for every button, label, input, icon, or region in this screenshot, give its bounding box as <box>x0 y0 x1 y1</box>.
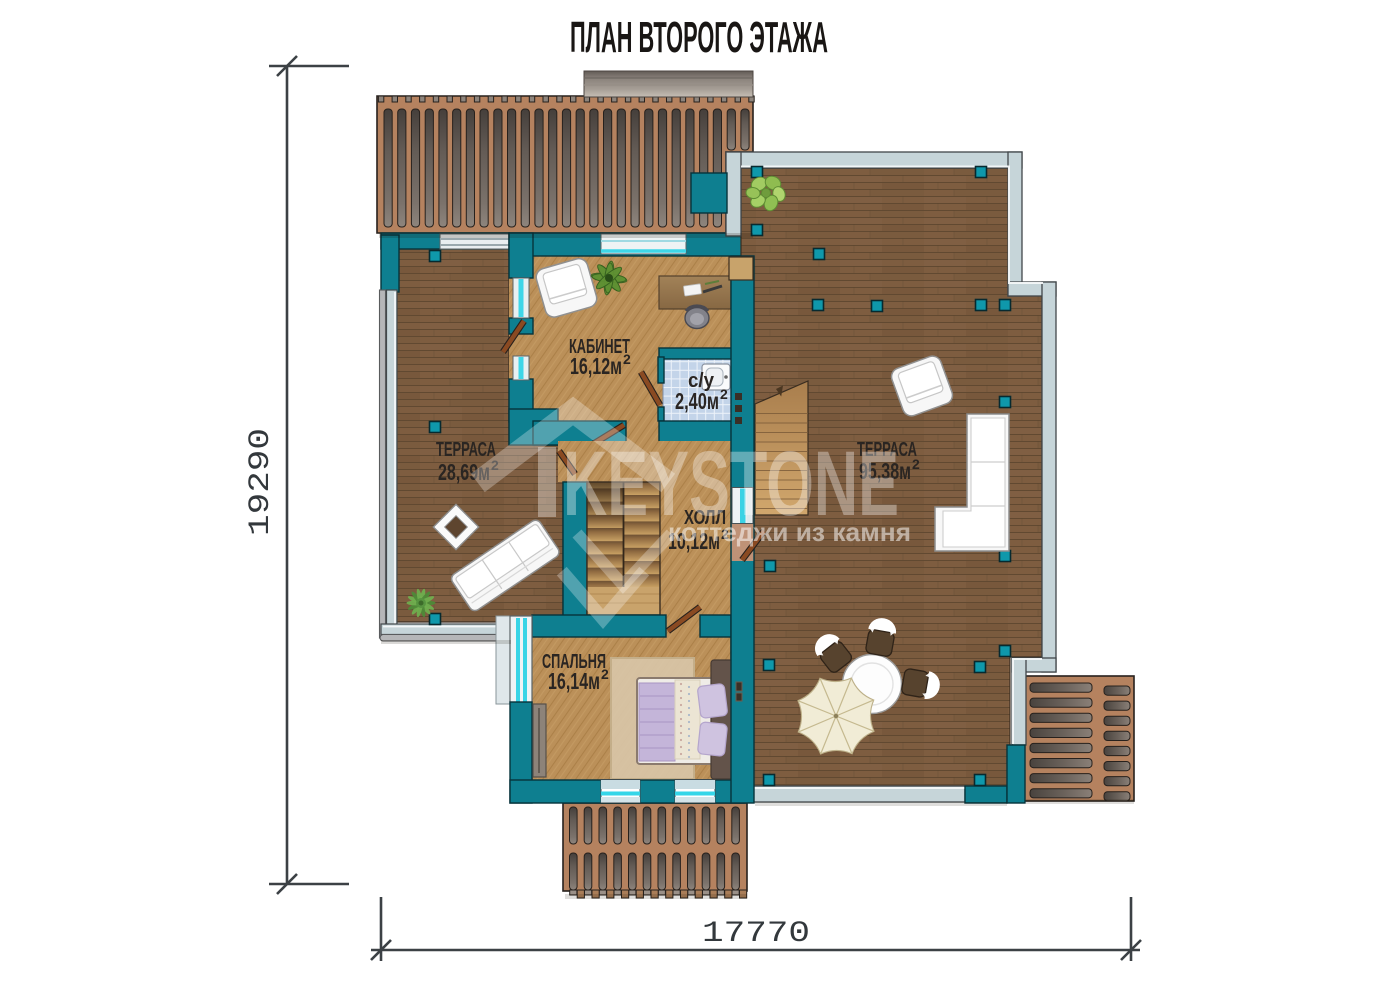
svg-text:2,40м: 2,40м <box>675 388 719 414</box>
svg-text:ТЕРРАСА: ТЕРРАСА <box>436 439 496 461</box>
svg-text:2: 2 <box>912 456 920 472</box>
svg-text:2: 2 <box>601 666 609 682</box>
svg-text:2: 2 <box>623 351 631 367</box>
svg-text:16,12м: 16,12м <box>570 353 622 379</box>
svg-text:2: 2 <box>720 386 728 402</box>
svg-text:коттеджи из камня: коттеджи из камня <box>668 517 911 547</box>
svg-text:17770: 17770 <box>702 917 810 951</box>
svg-text:19290: 19290 <box>244 428 278 536</box>
svg-text:ПЛАН ВТОРОГО ЭТАЖА: ПЛАН ВТОРОГО ЭТАЖА <box>570 13 828 62</box>
svg-text:16,14м: 16,14м <box>548 668 600 694</box>
